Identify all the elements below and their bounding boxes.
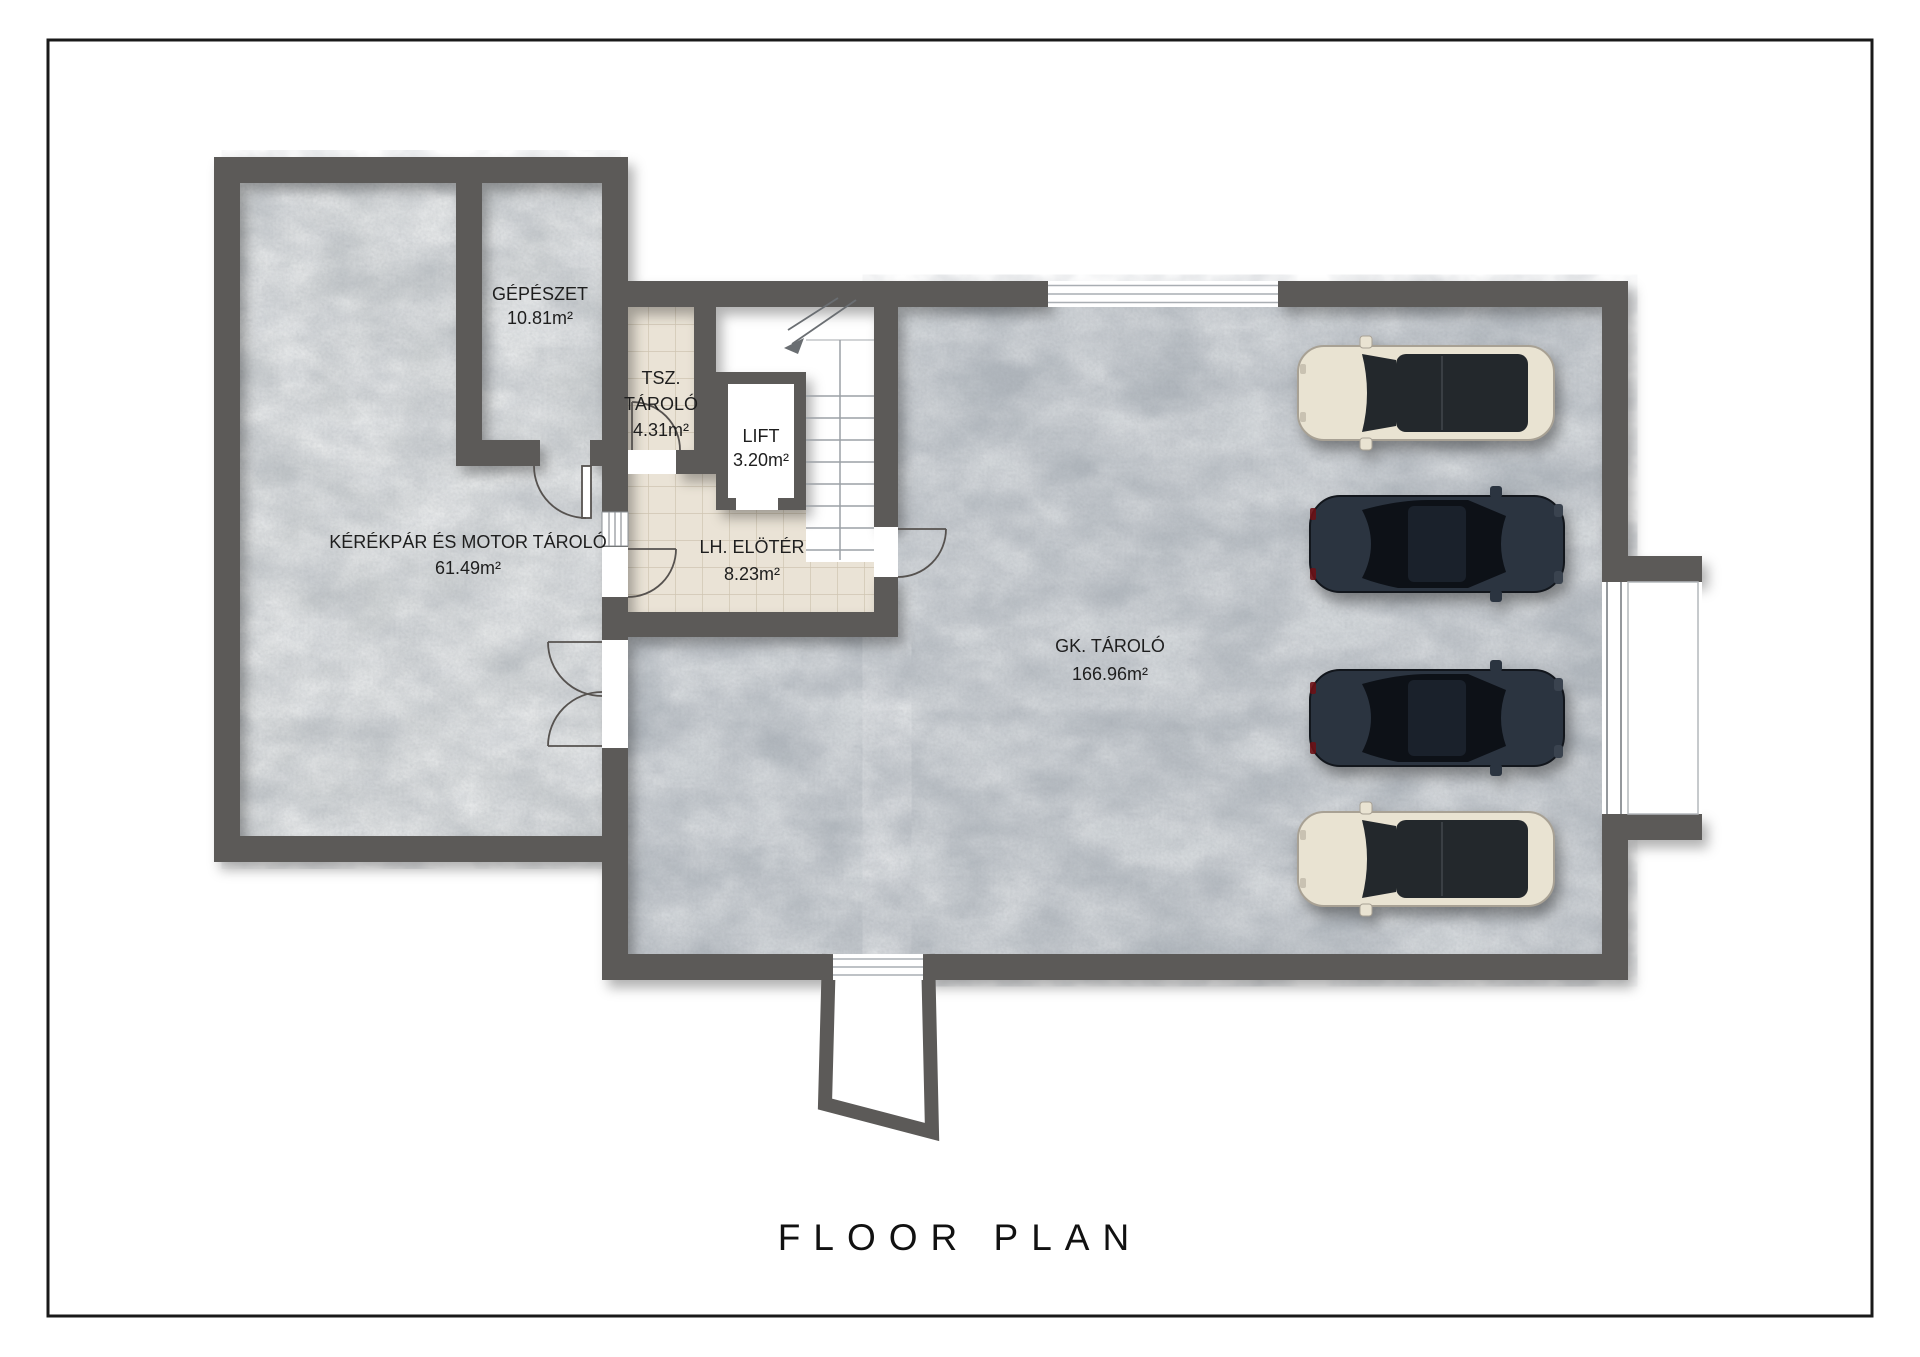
bottom-protrusion — [825, 954, 932, 1132]
room-gk-area: 166.96m² — [1072, 664, 1148, 684]
garage-gate-and-apron — [1602, 582, 1702, 814]
room-kerekpar-name: KÉRÉKPÁR ÉS MOTOR TÁROLÓ — [329, 531, 606, 552]
car-1-cream-suv — [1298, 336, 1554, 450]
room-lift-name: LIFT — [742, 426, 779, 446]
room-kerekpar-area: 61.49m² — [435, 558, 501, 578]
room-gk-name: GK. TÁROLÓ — [1055, 635, 1165, 656]
room-gepeszet-area: 10.81m² — [507, 308, 573, 328]
floor-plan-page: GÉPÉSZET 10.81m² TSZ. TÁROLÓ 4.31m² LIFT… — [0, 0, 1920, 1357]
car-3-dark-sedan — [1310, 660, 1564, 776]
room-tsz-area: 4.31m² — [633, 420, 689, 440]
room-eloter-area: 8.23m² — [724, 564, 780, 584]
room-eloter-name: LH. ELÖTÉR — [699, 537, 804, 557]
page-title: FLOOR PLAN — [778, 1217, 1142, 1258]
room-tsz-name-line1: TSZ. — [642, 368, 681, 388]
room-lift-area: 3.20m² — [733, 450, 789, 470]
room-gepeszet-name: GÉPÉSZET — [492, 284, 588, 304]
room-tsz-name-line2: TÁROLÓ — [624, 393, 698, 414]
top-window-opening — [1048, 281, 1278, 307]
car-2-dark-sedan — [1310, 486, 1564, 602]
bottom-door-opening — [833, 954, 923, 980]
car-4-cream-suv — [1298, 802, 1554, 916]
floor-plan-drawing: GÉPÉSZET 10.81m² TSZ. TÁROLÓ 4.31m² LIFT… — [0, 0, 1920, 1357]
